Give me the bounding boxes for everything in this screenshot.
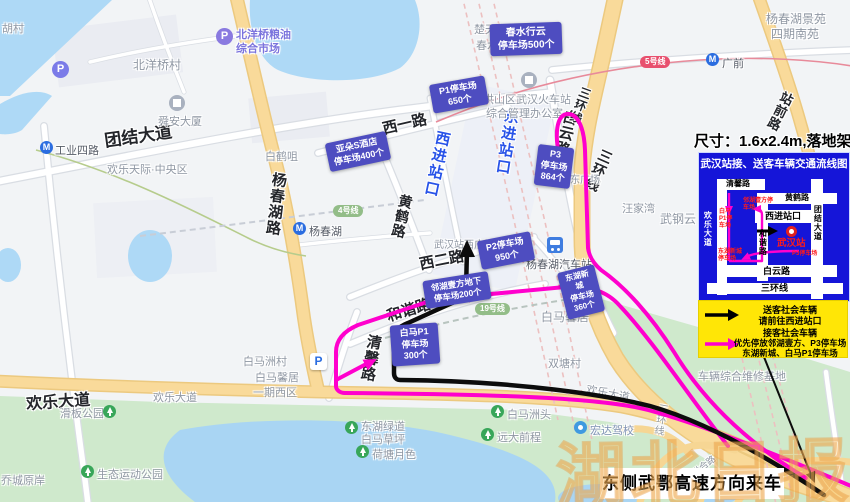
minimap-label-baima-p1: 白马P1停车场 (719, 209, 735, 230)
traffic-flow-map: 团结大道 欢乐大道 杨春湖路 西一路 黄鹤路 西二路 和谐路 清馨路 白云路 三… (0, 0, 850, 502)
minimap-label-p3: P3停车场 (792, 251, 817, 258)
incoming-direction-label: 东侧武鄂高速方向来车 (600, 468, 784, 499)
minimap-label-xijinzhankou: 西进站口 (765, 212, 801, 221)
parking-box-p3: P3 停车场 864个 (534, 144, 575, 189)
minimap-station-icon (786, 226, 797, 237)
minimap-roads (707, 179, 843, 299)
minimap-label-linhu: 邻湖壹方停车场 (743, 198, 775, 212)
minimap-label-baiyunlu: 白云路 (763, 267, 790, 276)
minimap-label-sanhuanxian: 三环线 (761, 284, 788, 293)
legend-panel: 武汉站接、送客车辆交通流线图 清馨路 黄鹤路 西进站口 和谐路 欢乐大道 团结大… (698, 152, 850, 302)
parking-box-baima: 白马P1 停车场 300个 (390, 322, 441, 366)
minimap-label-huanledadao: 欢乐大道 (703, 211, 711, 247)
minimap-label-qingxinlu: 清馨路 (726, 180, 750, 188)
minimap-label-station: 武汉站 (777, 239, 806, 250)
legend-pick-line3: 东湖新城、白马P1停车场 (733, 347, 847, 359)
parking-box-line: 300个 (395, 349, 436, 363)
minimap-label-huanghelu: 黄鹤路 (785, 194, 809, 202)
legend-title: 武汉站接、送客车辆交通流线图 (699, 156, 849, 171)
minimap-label-hexielu: 和谐路 (758, 229, 766, 256)
minimap-label-donghu: 东湖新城停车场 (718, 249, 746, 263)
minimap-label-tuanjiedadao: 团结大道 (813, 205, 821, 241)
size-note: 尺寸：1.6x2.4m,落地架 (694, 130, 850, 151)
parking-box-chunshui: 春水行云 停车场500个 (489, 22, 562, 56)
parking-box-line: 停车场500个 (494, 38, 558, 53)
parking-box-line: 864个 (538, 171, 567, 186)
legend-key: 送客社会车辆 请前往西进站口 接客社会车辆 优先停放邻湖壹方、P3停车场 东湖新… (698, 300, 848, 358)
